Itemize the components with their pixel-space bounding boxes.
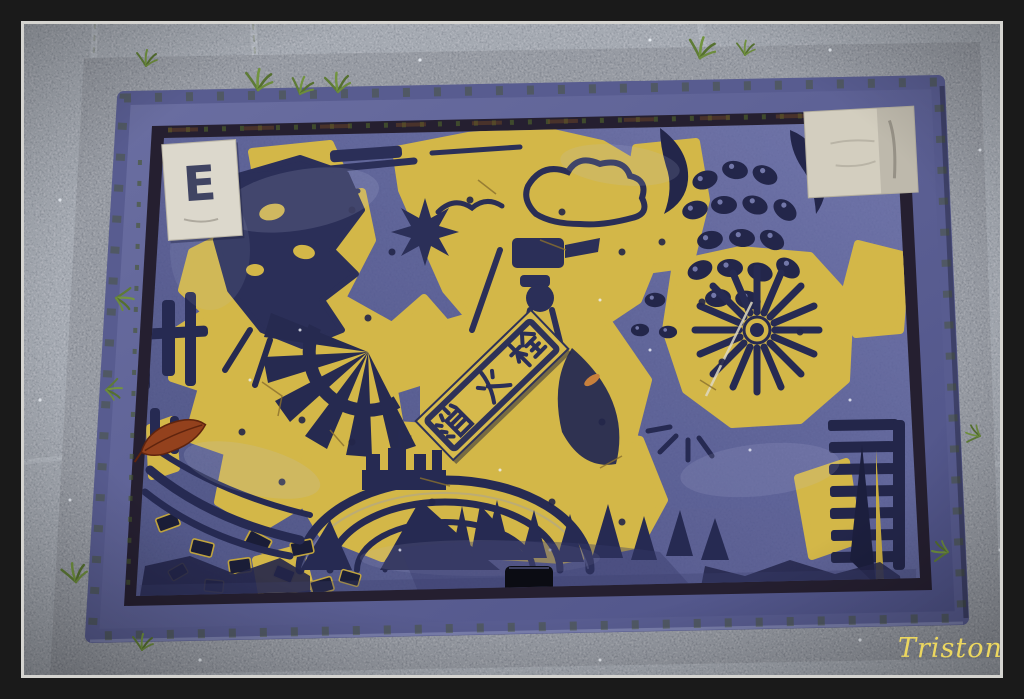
photo-frame: E xyxy=(0,0,1024,699)
watermark-text: Triston xyxy=(898,633,1000,664)
vignette xyxy=(24,24,1000,675)
photo-svg: E xyxy=(24,24,1000,675)
photo: E xyxy=(24,24,1000,675)
